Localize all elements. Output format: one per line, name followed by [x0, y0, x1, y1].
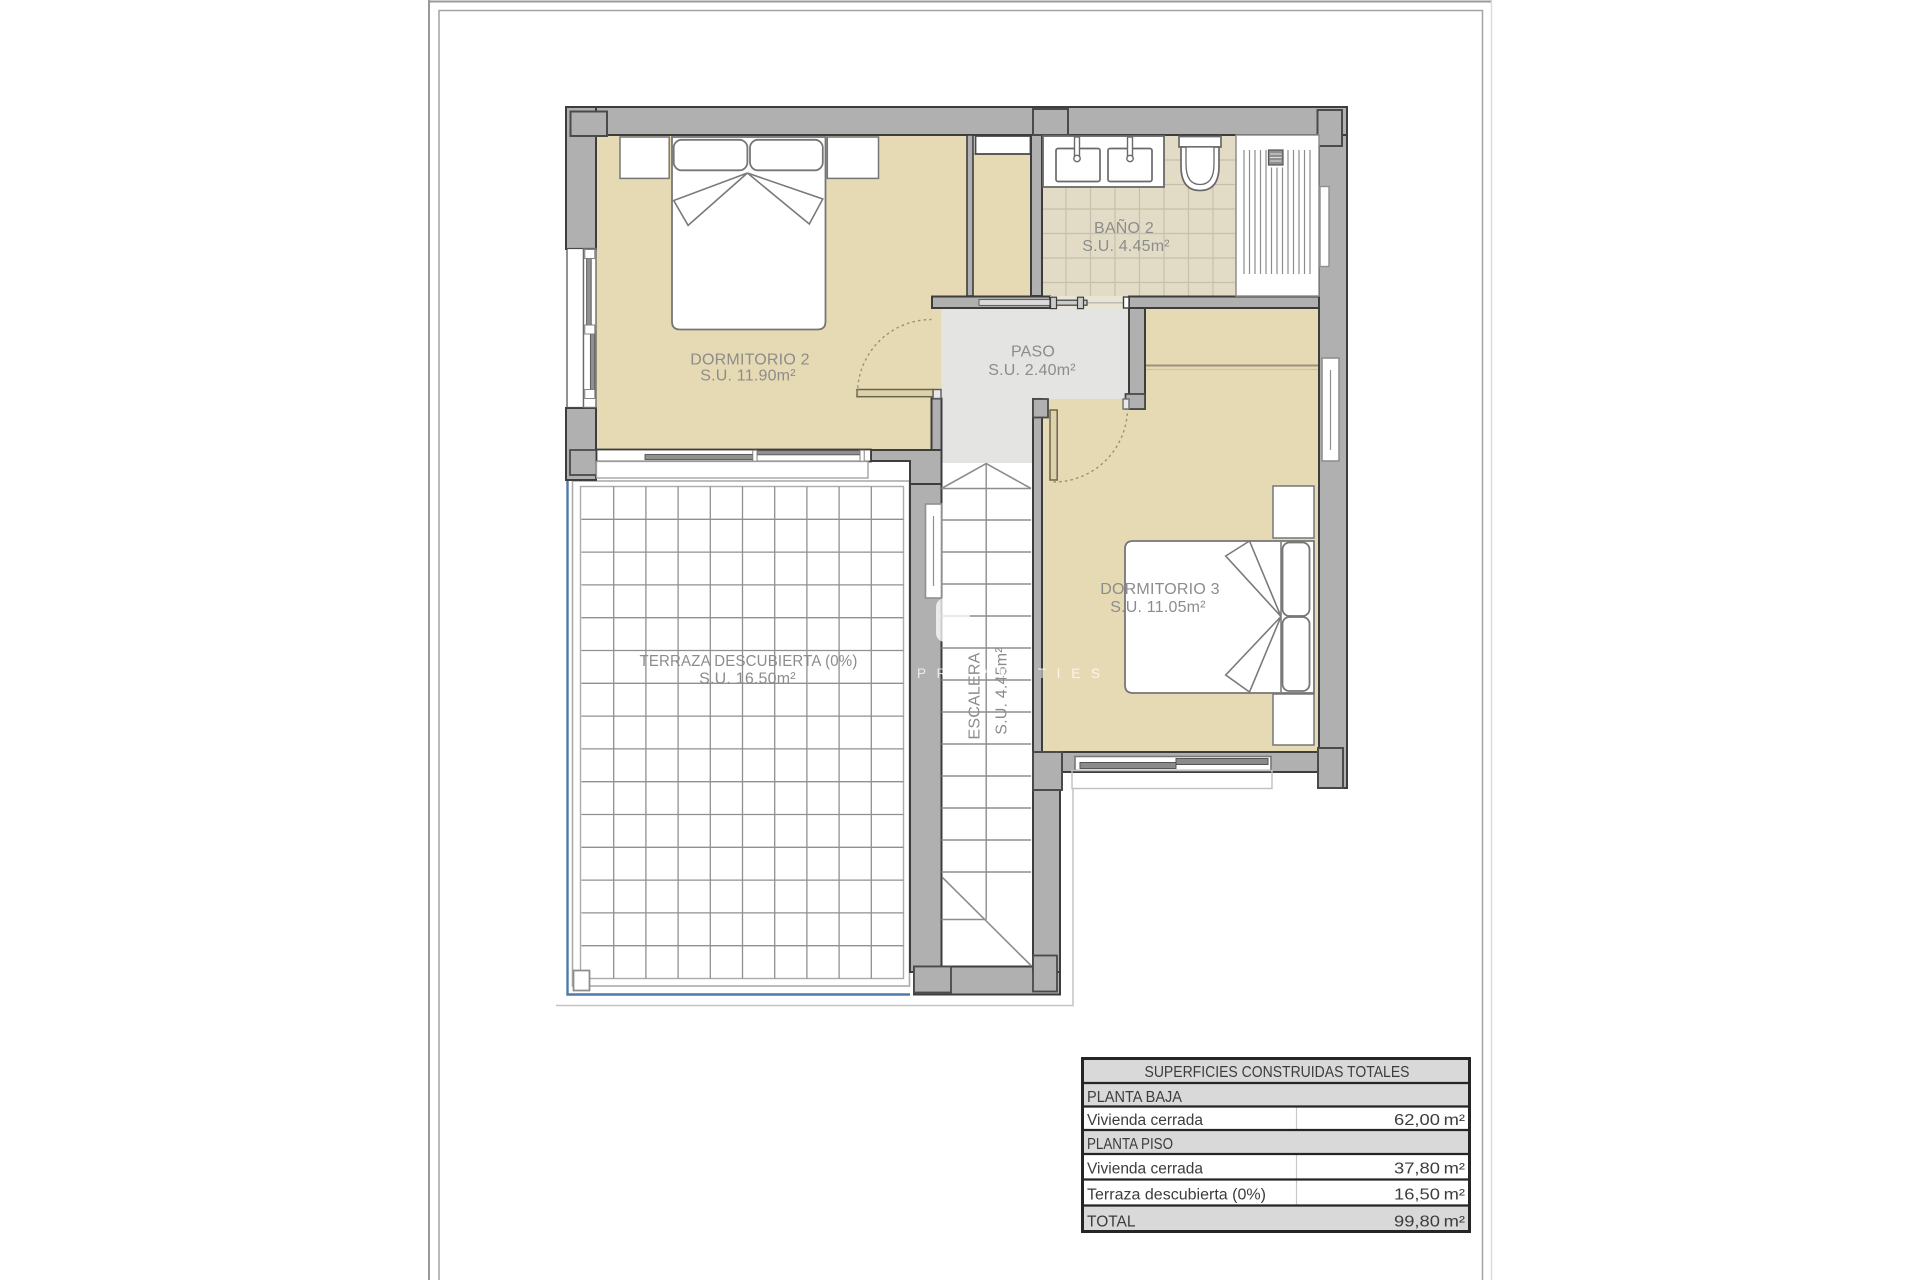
svg-text:Vivienda cerrada: Vivienda cerrada: [1087, 1112, 1203, 1129]
svg-text:S.U. 4.45m²: S.U. 4.45m²: [994, 647, 1011, 735]
svg-text:SUPERFICIES CONSTRUIDAS TOTALE: SUPERFICIES CONSTRUIDAS TOTALES: [1145, 1064, 1410, 1081]
svg-text:62,00 m²: 62,00 m²: [1394, 1112, 1465, 1129]
svg-text:37,80 m²: 37,80 m²: [1394, 1161, 1465, 1178]
svg-text:16,50 m²: 16,50 m²: [1394, 1187, 1465, 1204]
svg-text:DORMITORIO 3: DORMITORIO 3: [1100, 581, 1219, 598]
svg-text:S.U. 4.45m²: S.U. 4.45m²: [1082, 238, 1170, 255]
svg-text:S.U. 16.50m²: S.U. 16.50m²: [699, 671, 796, 688]
svg-text:PLANTA BAJA: PLANTA BAJA: [1087, 1089, 1183, 1106]
svg-text:99,80 m²: 99,80 m²: [1394, 1214, 1465, 1231]
svg-text:BAÑO 2: BAÑO 2: [1094, 217, 1154, 237]
svg-text:DORMITORIO 2: DORMITORIO 2: [690, 352, 809, 369]
svg-text:TERRAZA DESCUBIERTA (0%): TERRAZA DESCUBIERTA (0%): [640, 653, 858, 670]
svg-text:S.U. 11.05m²: S.U. 11.05m²: [1110, 599, 1206, 616]
svg-text:S.U. 11.90m²: S.U. 11.90m²: [700, 368, 796, 385]
svg-text:Terraza descubierta (0%): Terraza descubierta (0%): [1087, 1187, 1266, 1204]
svg-text:Vivienda cerrada: Vivienda cerrada: [1087, 1161, 1203, 1178]
svg-text:PLANTA PISO: PLANTA PISO: [1087, 1136, 1173, 1153]
svg-text:S.U. 2.40m²: S.U. 2.40m²: [988, 362, 1076, 379]
svg-text:TOTAL: TOTAL: [1087, 1214, 1136, 1231]
svg-text:PASO: PASO: [1011, 344, 1055, 361]
